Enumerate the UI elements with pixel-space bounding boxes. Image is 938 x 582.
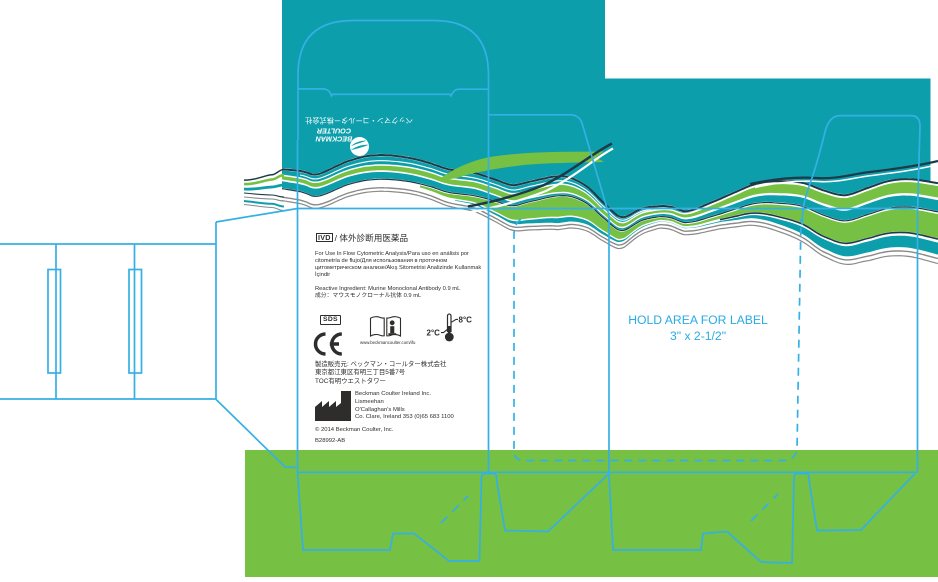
svg-text:2°C: 2°C: [427, 329, 441, 338]
svg-text:COULTER: COULTER: [316, 127, 351, 136]
svg-text:ベックマン・コールター株式会社: ベックマン・コールター株式会社: [305, 116, 413, 125]
svg-text:8°C: 8°C: [459, 315, 473, 324]
